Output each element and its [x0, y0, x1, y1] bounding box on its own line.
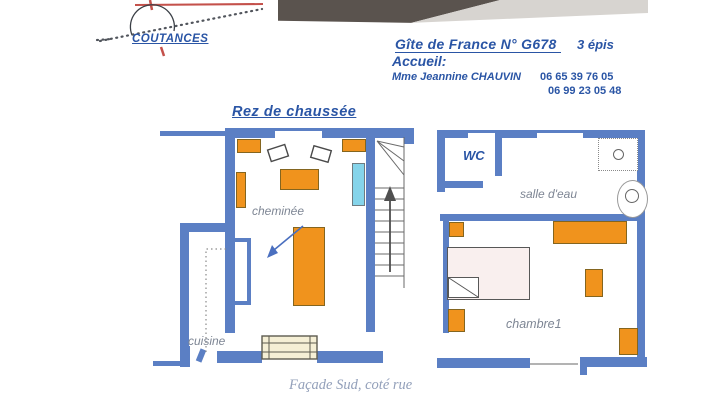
label-chambre1: chambre1	[506, 317, 562, 331]
wall-segment	[443, 181, 483, 188]
stairs-steps	[375, 188, 404, 276]
map-dotted-route-left	[97, 39, 112, 40]
furniture-orange	[280, 169, 319, 190]
wall-segment	[580, 357, 647, 367]
wall-segment	[583, 130, 645, 138]
phone-1: 06 65 39 76 05	[540, 71, 613, 83]
floor-title: Rez de chaussée	[232, 104, 356, 120]
wall-segment	[580, 357, 587, 375]
chimney-recess	[231, 238, 251, 305]
page-caption: Façade Sud, coté rue	[289, 377, 412, 394]
wall-segment	[317, 351, 383, 363]
furniture-orange	[342, 139, 366, 152]
furniture-orange	[237, 139, 261, 153]
phone-2: 06 99 23 05 48	[548, 85, 621, 97]
furniture-orange	[553, 221, 627, 244]
furniture-orange	[448, 309, 465, 332]
host-name: Mme Jeannine CHAUVIN	[392, 71, 521, 83]
furniture-cyan	[352, 163, 365, 206]
wall-segment	[153, 361, 182, 366]
wall-segment	[366, 136, 375, 332]
gite-rating: 3 épis	[577, 37, 614, 52]
shower-drain	[613, 149, 624, 160]
window-opening	[274, 128, 322, 131]
coutances-label: COUTANCES	[132, 33, 208, 45]
side-tables	[268, 145, 332, 163]
map-road-line	[135, 4, 263, 5]
bed-fold	[448, 277, 479, 298]
furniture-orange	[293, 227, 325, 306]
label-wc: WC	[463, 148, 485, 163]
accueil-label: Accueil:	[392, 53, 446, 69]
label-cheminee: cheminée	[252, 204, 304, 218]
washbasin-bowl	[625, 189, 639, 203]
wall-segment	[160, 131, 226, 136]
wall-segment	[440, 214, 640, 221]
wall-segment	[495, 130, 502, 176]
label-cuisine: cuisine	[188, 334, 225, 348]
header-block: Gîte de France N° G678 3 épis	[395, 36, 614, 54]
wall-segment	[180, 346, 190, 367]
furniture-orange	[236, 172, 246, 208]
wall-segment	[404, 128, 414, 144]
wall-segment	[637, 130, 645, 366]
map-road-tick-top	[150, 0, 152, 10]
door-jamb	[196, 348, 206, 362]
stairs-up-arrow-icon	[384, 186, 396, 272]
stairs-winders	[377, 141, 404, 175]
window-opening	[537, 130, 583, 133]
location-map-sketch	[97, 0, 263, 56]
furniture-orange	[449, 222, 464, 237]
sofa	[262, 336, 317, 359]
map-road-tick-bottom	[161, 47, 164, 56]
label-salle-deau: salle d'eau	[520, 187, 577, 201]
furniture-orange	[619, 328, 638, 355]
gite-title: Gîte de France N° G678	[395, 36, 561, 53]
staircase	[375, 137, 404, 288]
map-ring-arc	[130, 5, 174, 35]
facade-photo	[278, 0, 648, 26]
wall-segment	[437, 358, 530, 368]
scanned-gite-listing-page: Gîte de France N° G678 3 épis Accueil: M…	[0, 0, 720, 405]
wall-segment	[217, 351, 262, 363]
furniture-orange	[585, 269, 603, 297]
window-opening	[468, 130, 495, 133]
